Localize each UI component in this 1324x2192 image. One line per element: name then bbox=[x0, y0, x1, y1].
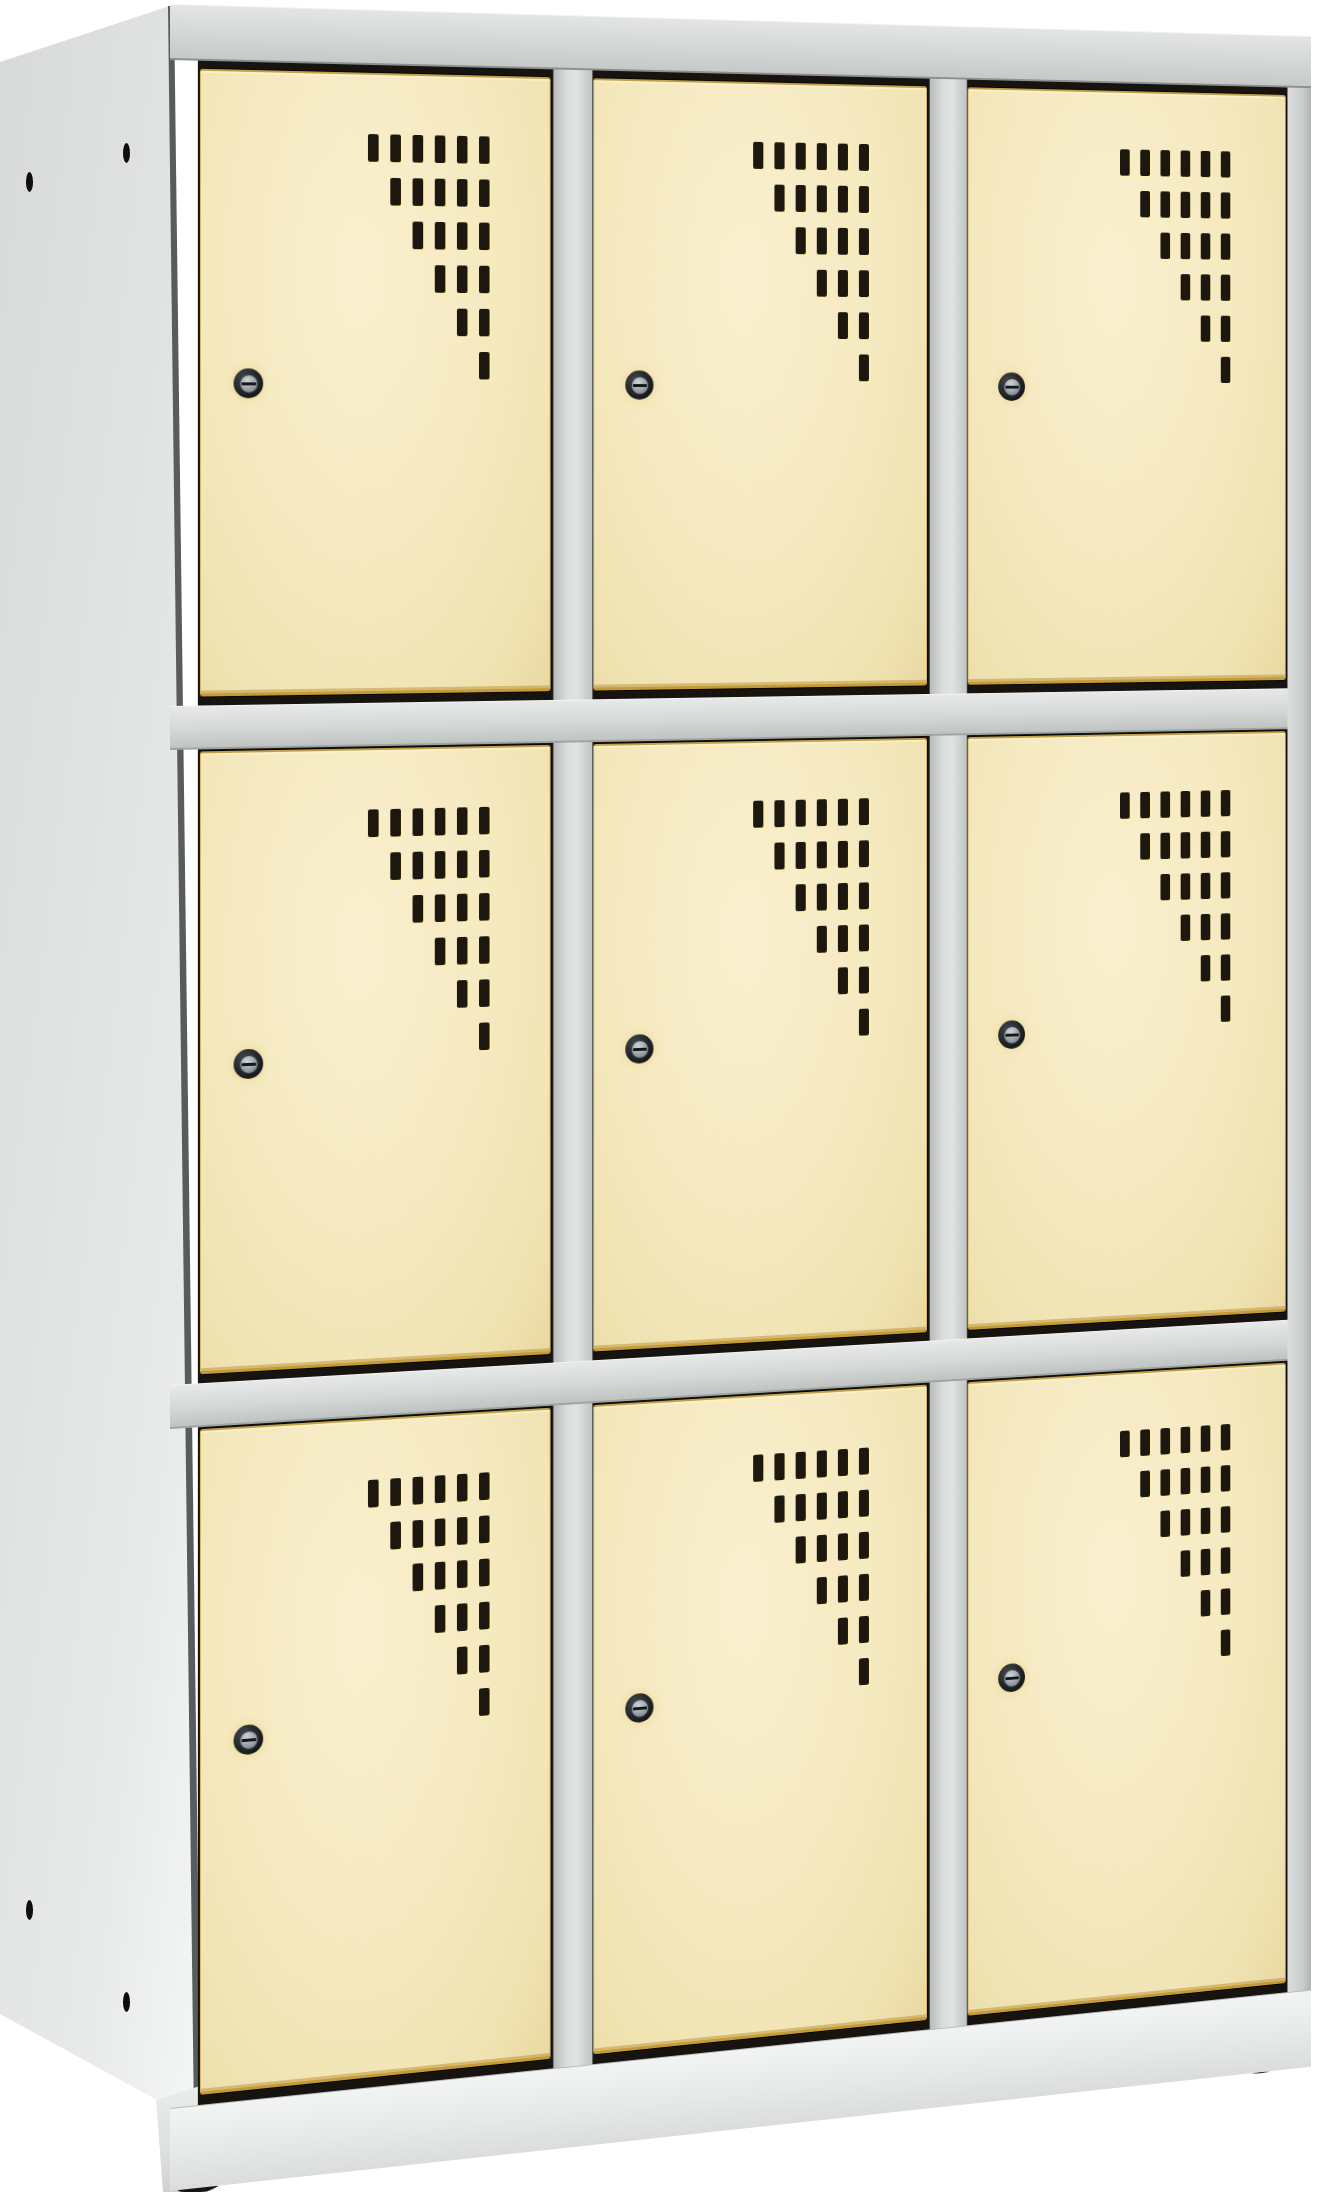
vent-slot bbox=[435, 1475, 446, 1503]
vent-slot bbox=[859, 1009, 869, 1036]
cylinder-lock-icon bbox=[998, 372, 1025, 401]
vent-slot bbox=[1120, 1430, 1130, 1457]
vent-slot bbox=[859, 354, 869, 381]
vent-slot bbox=[796, 884, 806, 911]
screw-hole bbox=[26, 172, 33, 192]
vent-slot bbox=[1181, 832, 1191, 858]
vent-slot bbox=[457, 265, 468, 293]
vent-slot bbox=[817, 270, 827, 297]
vent-slot bbox=[1201, 790, 1211, 816]
vent-slot bbox=[1201, 1466, 1211, 1493]
vent-slot bbox=[1221, 357, 1231, 383]
vent-slot bbox=[435, 222, 446, 250]
vent-slot bbox=[838, 1491, 848, 1519]
vent-slot bbox=[859, 1658, 869, 1686]
vent-slot bbox=[796, 800, 806, 827]
locker-door-r1-c2 bbox=[593, 78, 927, 690]
vent-slot bbox=[435, 135, 446, 163]
locker-product-photo bbox=[0, 0, 1324, 2192]
vent-slot bbox=[457, 1603, 468, 1631]
door-cell-r2-c1 bbox=[198, 740, 553, 1383]
vent-slot bbox=[435, 1605, 446, 1633]
vertical-mullion bbox=[929, 76, 968, 2029]
vent-slot bbox=[1221, 1629, 1231, 1656]
vent-slot bbox=[390, 852, 401, 880]
vent-slot bbox=[1181, 1509, 1191, 1536]
vent-slot bbox=[1221, 1465, 1231, 1492]
vent-slot bbox=[796, 1494, 806, 1522]
vent-slot bbox=[838, 186, 848, 213]
keyhole-slit-icon bbox=[633, 384, 647, 387]
vent-slot bbox=[1140, 792, 1150, 819]
screw-hole bbox=[123, 1992, 130, 2012]
vent-slot bbox=[457, 980, 468, 1008]
vent-slot bbox=[435, 808, 446, 836]
vent-slot bbox=[817, 143, 827, 170]
vent-slot bbox=[435, 937, 446, 965]
vent-slot bbox=[435, 265, 446, 293]
locker-door-r1-c3 bbox=[968, 87, 1286, 685]
vent-slot bbox=[1181, 1468, 1191, 1495]
door-cell-r2-c2 bbox=[591, 733, 929, 1360]
vent-slot bbox=[1221, 1506, 1231, 1533]
cylinder-lock-icon bbox=[625, 1692, 653, 1723]
vent-slot bbox=[1160, 1428, 1170, 1455]
vent-slot bbox=[1160, 874, 1170, 901]
locker-door-r2-c2 bbox=[593, 738, 927, 1352]
vent-slot bbox=[1201, 151, 1211, 177]
vent-slot bbox=[1221, 954, 1231, 980]
vent-slot bbox=[390, 1521, 401, 1549]
vent-slot bbox=[413, 852, 424, 880]
vent-slot bbox=[1181, 150, 1191, 176]
vent-slot bbox=[479, 179, 490, 207]
vent-slot bbox=[1221, 1547, 1231, 1574]
vent-slot bbox=[796, 185, 806, 212]
vent-slot bbox=[838, 841, 848, 868]
vent-slot bbox=[838, 312, 848, 339]
vent-slot bbox=[817, 1535, 827, 1563]
vent-slot bbox=[1221, 192, 1231, 218]
vent-slot bbox=[1201, 233, 1211, 259]
vent-slot bbox=[457, 309, 468, 337]
vent-slot bbox=[774, 185, 784, 212]
vent-slot bbox=[859, 1532, 869, 1560]
vent-slot bbox=[859, 1447, 869, 1474]
screw-hole bbox=[26, 1900, 33, 1920]
vent-slot bbox=[368, 134, 379, 162]
cylinder-lock-icon bbox=[998, 1663, 1025, 1694]
vent-slot bbox=[838, 270, 848, 297]
vent-slot bbox=[859, 144, 869, 171]
vent-slot bbox=[1181, 791, 1191, 817]
vent-slot bbox=[1201, 1549, 1211, 1576]
vent-slot bbox=[413, 895, 424, 923]
vent-slot bbox=[1160, 150, 1170, 176]
vent-slot bbox=[1120, 792, 1130, 819]
vent-slot bbox=[838, 228, 848, 255]
vent-slot bbox=[1221, 233, 1231, 259]
locker-door-r1-c1 bbox=[200, 69, 551, 697]
vent-slot bbox=[774, 842, 784, 869]
keyhole-slit-icon bbox=[1005, 386, 1018, 389]
vent-slot bbox=[1201, 832, 1211, 858]
locker-front bbox=[170, 0, 1311, 2190]
vent-slot bbox=[413, 222, 424, 250]
vent-slot bbox=[817, 841, 827, 868]
cylinder-lock-icon bbox=[998, 1020, 1025, 1049]
vent-slot bbox=[435, 894, 446, 922]
vent-slot bbox=[1221, 872, 1231, 898]
vent-slot bbox=[479, 1472, 490, 1500]
vent-slot bbox=[457, 1517, 468, 1545]
keyhole-slit-icon bbox=[633, 1048, 647, 1051]
vent-slot bbox=[1160, 233, 1170, 259]
vent-slot bbox=[457, 1560, 468, 1588]
vent-slot bbox=[1140, 1429, 1150, 1456]
vent-slot bbox=[1181, 192, 1191, 218]
vent-slot bbox=[413, 178, 424, 206]
vent-slot bbox=[859, 228, 869, 255]
vent-slot bbox=[479, 1515, 490, 1543]
vent-slot bbox=[1160, 1469, 1170, 1496]
vent-slot bbox=[859, 1574, 869, 1602]
vent-slot bbox=[1181, 873, 1191, 899]
vent-slot bbox=[1201, 192, 1211, 218]
vertical-mullion bbox=[553, 66, 594, 2068]
vent-slot bbox=[817, 1577, 827, 1605]
vent-slot bbox=[859, 882, 869, 909]
locker-door-r2-c1 bbox=[200, 745, 551, 1374]
vent-slot bbox=[859, 840, 869, 867]
keyhole-slit-icon bbox=[241, 382, 256, 385]
vent-slot bbox=[457, 136, 468, 164]
vent-slot bbox=[774, 800, 784, 827]
vent-slot bbox=[859, 924, 869, 951]
vent-slot bbox=[817, 1450, 827, 1478]
vent-slot bbox=[413, 808, 424, 836]
vent-slot bbox=[859, 186, 869, 213]
vent-slot bbox=[457, 807, 468, 835]
vent-slot bbox=[1221, 1588, 1231, 1615]
vent-slot bbox=[479, 223, 490, 251]
vent-slot bbox=[1201, 914, 1211, 940]
vent-slot bbox=[457, 894, 468, 922]
vent-slot bbox=[817, 1492, 827, 1520]
vent-slot bbox=[1181, 1550, 1191, 1577]
vent-slot bbox=[1181, 274, 1191, 300]
vent-slot bbox=[435, 1518, 446, 1546]
vent-slot bbox=[413, 1477, 424, 1505]
vent-slot bbox=[1140, 1470, 1150, 1497]
cylinder-lock-icon bbox=[234, 1049, 264, 1080]
vent-slot bbox=[1201, 1507, 1211, 1534]
vent-slot bbox=[1201, 1590, 1211, 1617]
vent-slot bbox=[838, 1617, 848, 1645]
door-cell-r1-c3 bbox=[966, 77, 1288, 694]
vent-slot bbox=[796, 143, 806, 170]
vent-slot bbox=[1181, 914, 1191, 941]
vent-slot bbox=[859, 270, 869, 297]
vent-slot bbox=[479, 136, 490, 164]
vent-slot bbox=[1221, 1424, 1231, 1451]
vent-slot bbox=[838, 925, 848, 952]
vent-slot bbox=[479, 979, 490, 1007]
vent-slot bbox=[1160, 191, 1170, 217]
locker-door-r3-c1 bbox=[200, 1408, 551, 2095]
vent-slot bbox=[838, 1575, 848, 1603]
vent-slot bbox=[1140, 150, 1150, 176]
vent-slot bbox=[479, 266, 490, 294]
vent-slot bbox=[1201, 873, 1211, 899]
vent-slot bbox=[1140, 191, 1150, 217]
vent-slot bbox=[838, 144, 848, 171]
vent-slot bbox=[479, 309, 490, 337]
vent-slot bbox=[1221, 275, 1231, 301]
vent-slot bbox=[774, 1453, 784, 1481]
vent-slot bbox=[413, 1520, 424, 1548]
vent-slot bbox=[435, 851, 446, 879]
cylinder-lock-icon bbox=[625, 370, 653, 399]
vent-slot bbox=[457, 1474, 468, 1502]
door-cell-r1-c1 bbox=[198, 58, 553, 706]
vent-slot bbox=[1181, 1427, 1191, 1454]
vent-slot bbox=[1221, 790, 1231, 816]
vent-slot bbox=[774, 1495, 784, 1523]
vent-slot bbox=[817, 926, 827, 953]
vent-slot bbox=[479, 1602, 490, 1630]
vent-slot bbox=[479, 1022, 490, 1050]
vent-slot bbox=[457, 937, 468, 965]
screw-hole bbox=[123, 143, 130, 163]
vent-slot bbox=[838, 1449, 848, 1476]
keyhole-slit-icon bbox=[241, 1063, 256, 1067]
vent-slot bbox=[390, 809, 401, 837]
vent-slot bbox=[479, 1645, 490, 1673]
locker-door-r3-c2 bbox=[593, 1385, 927, 2055]
vent-slot bbox=[1140, 833, 1150, 860]
vent-slot bbox=[435, 179, 446, 207]
cylinder-lock-icon bbox=[234, 1724, 264, 1756]
vent-slot bbox=[796, 842, 806, 869]
vent-slot bbox=[457, 850, 468, 878]
right-frame-post bbox=[1287, 85, 1310, 1992]
vent-slot bbox=[479, 893, 490, 921]
vent-slot bbox=[1221, 831, 1231, 857]
vent-slot bbox=[1221, 151, 1231, 177]
door-cell-r3-c2 bbox=[591, 1380, 929, 2065]
vent-slot bbox=[1221, 913, 1231, 939]
vent-slot bbox=[796, 1536, 806, 1564]
vent-slot bbox=[859, 312, 869, 339]
door-cell-r3-c1 bbox=[198, 1403, 553, 2105]
vent-slot bbox=[435, 1562, 446, 1590]
door-cell-r1-c2 bbox=[591, 67, 929, 699]
vent-slot bbox=[390, 1478, 401, 1506]
vent-slot bbox=[859, 1616, 869, 1644]
vent-slot bbox=[390, 178, 401, 206]
vent-slot bbox=[796, 227, 806, 254]
vent-slot bbox=[859, 798, 869, 825]
vent-slot bbox=[1201, 1425, 1211, 1452]
vent-slot bbox=[1160, 833, 1170, 860]
vent-slot bbox=[796, 1452, 806, 1480]
vent-slot bbox=[479, 850, 490, 878]
vent-slot bbox=[479, 1688, 490, 1716]
vent-slot bbox=[1221, 316, 1231, 342]
vent-slot bbox=[479, 352, 490, 380]
vent-slot bbox=[838, 883, 848, 910]
vent-slot bbox=[859, 1490, 869, 1517]
vent-slot bbox=[1221, 995, 1231, 1022]
vent-slot bbox=[838, 799, 848, 826]
cylinder-lock-icon bbox=[234, 368, 264, 398]
vent-slot bbox=[368, 809, 379, 837]
vent-slot bbox=[457, 222, 468, 250]
door-cell-r3-c3 bbox=[966, 1358, 1288, 2026]
keyhole-slit-icon bbox=[1005, 1033, 1018, 1036]
vent-slot bbox=[368, 1479, 379, 1507]
vent-slot bbox=[1181, 233, 1191, 259]
vent-slot bbox=[479, 807, 490, 835]
vent-slot bbox=[413, 135, 424, 163]
vent-slot bbox=[1201, 315, 1211, 341]
vent-slot bbox=[838, 1533, 848, 1561]
locker-door-r2-c3 bbox=[968, 731, 1286, 1330]
vent-slot bbox=[457, 1646, 468, 1674]
vent-slot bbox=[1160, 1510, 1170, 1537]
vent-slot bbox=[1120, 149, 1130, 176]
vent-slot bbox=[1201, 274, 1211, 300]
vent-slot bbox=[817, 228, 827, 255]
door-cell-r2-c3 bbox=[966, 726, 1288, 1338]
vent-slot bbox=[753, 1454, 763, 1482]
vent-slot bbox=[1201, 955, 1211, 982]
vent-slot bbox=[457, 179, 468, 207]
vent-slot bbox=[479, 1558, 490, 1586]
vent-slot bbox=[774, 142, 784, 169]
vent-slot bbox=[1160, 791, 1170, 817]
vent-slot bbox=[817, 884, 827, 911]
vent-slot bbox=[413, 1563, 424, 1591]
vent-slot bbox=[479, 936, 490, 964]
vent-slot bbox=[859, 966, 869, 993]
vent-slot bbox=[753, 142, 763, 169]
vent-slot bbox=[817, 799, 827, 826]
vent-slot bbox=[838, 967, 848, 994]
cylinder-lock-icon bbox=[625, 1034, 653, 1064]
locker-door-r3-c3 bbox=[968, 1363, 1286, 2016]
vent-slot bbox=[817, 185, 827, 212]
vent-slot bbox=[753, 801, 763, 828]
vent-slot bbox=[390, 134, 401, 162]
